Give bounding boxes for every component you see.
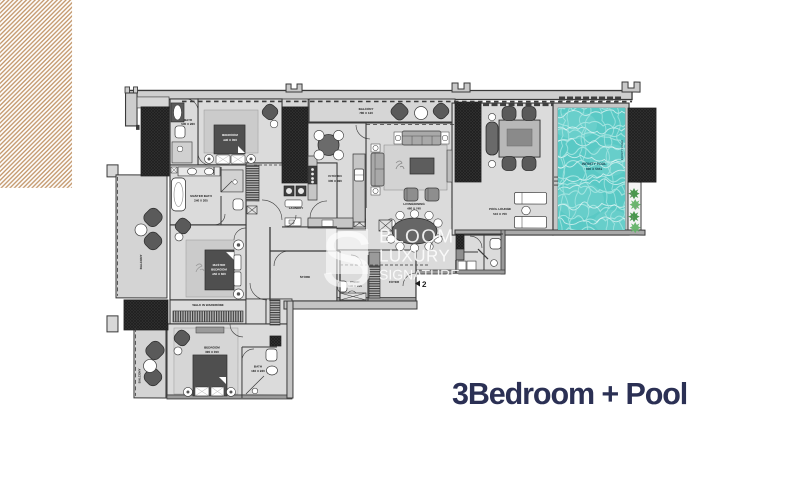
svg-text:300 X 490: 300 X 490	[328, 179, 342, 183]
svg-text:BEDROOM: BEDROOM	[211, 267, 227, 271]
svg-text:BALCONY: BALCONY	[137, 369, 141, 384]
svg-text:MASTER: MASTER	[213, 263, 227, 267]
svg-text:440 X 350: 440 X 350	[223, 138, 237, 142]
svg-text:780 X 120: 780 X 120	[359, 111, 373, 115]
svg-text:510 X 700: 510 X 700	[493, 212, 507, 216]
svg-text:KITCHEN: KITCHEN	[328, 174, 341, 178]
svg-text:BLOOM: BLOOM	[379, 226, 455, 247]
svg-text:BEDROOM: BEDROOM	[222, 133, 238, 137]
svg-text:INFINITY POOL: INFINITY POOL	[582, 162, 607, 166]
svg-text:SIGNATURE: SIGNATURE	[379, 266, 460, 282]
svg-text:930 X 5941: 930 X 5941	[586, 167, 603, 171]
svg-text:BEDROOM: BEDROOM	[204, 345, 220, 349]
svg-text:MASTER BATH: MASTER BATH	[190, 194, 212, 198]
svg-text:WALK IN WARDROBE: WALK IN WARDROBE	[192, 303, 223, 307]
svg-text:450 X 600: 450 X 600	[212, 272, 226, 276]
svg-text:STORE: STORE	[300, 275, 310, 279]
svg-text:BATH: BATH	[254, 364, 262, 368]
svg-text:LIVING/DINING: LIVING/DINING	[403, 202, 425, 206]
svg-text:160 X 260: 160 X 260	[251, 369, 265, 373]
svg-text:INFINITY EDGE: INFINITY EDGE	[620, 140, 624, 160]
svg-text:BALCONY: BALCONY	[139, 255, 143, 270]
svg-text:460 X 740: 460 X 740	[407, 207, 421, 211]
svg-text:POOL LOUNGE: POOL LOUNGE	[489, 207, 511, 211]
svg-text:LUXURY: LUXURY	[379, 246, 450, 265]
svg-text:S: S	[320, 215, 373, 304]
svg-text:3Bedroom + Pool: 3Bedroom + Pool	[452, 377, 687, 411]
svg-text:390 X 350: 390 X 350	[205, 350, 219, 354]
svg-text:500 X 260: 500 X 260	[181, 122, 195, 126]
svg-text:240 X 205: 240 X 205	[194, 198, 208, 202]
svg-text:LAUNDRY: LAUNDRY	[289, 206, 304, 210]
